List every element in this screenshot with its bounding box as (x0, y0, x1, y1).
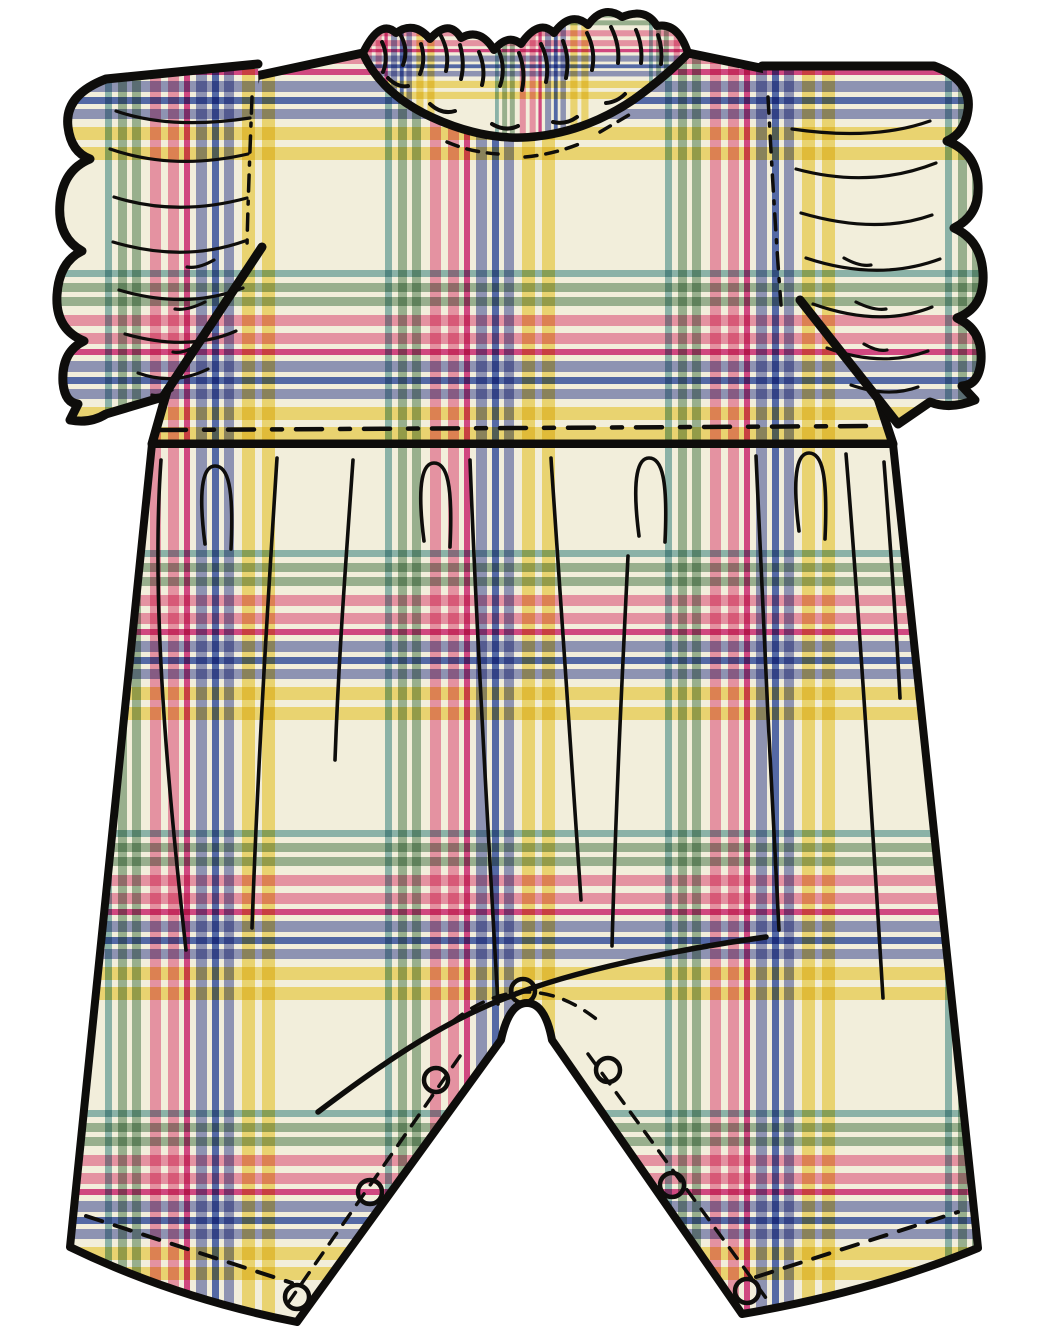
garment-sketch-page (0, 0, 1048, 1342)
romper-flat-sketch (0, 0, 1048, 1342)
romper-bottom-panel (70, 444, 978, 1322)
lower-body (70, 444, 978, 1322)
